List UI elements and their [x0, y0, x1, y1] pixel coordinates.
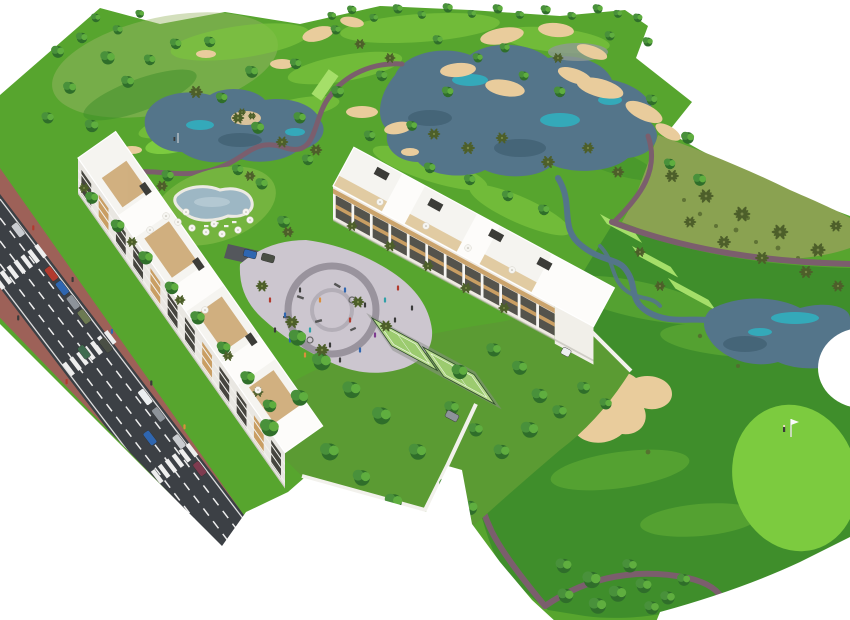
pedestrian: [72, 277, 74, 282]
arcade-pillar: [407, 232, 410, 259]
golfer-west: [174, 137, 176, 141]
parasol: [175, 219, 182, 226]
plaza-person: [319, 297, 321, 302]
plaza-person: [349, 317, 351, 322]
parasol: [219, 231, 226, 238]
plaza-person: [309, 327, 311, 332]
plaza-person: [384, 297, 386, 302]
plaza-person: [344, 287, 346, 292]
parasol: [202, 307, 209, 314]
plaza-person: [329, 342, 331, 347]
plaza-person: [411, 305, 413, 310]
plaza-person: [274, 327, 276, 332]
plaza-person: [359, 347, 361, 352]
plaza-person: [284, 312, 286, 317]
parasol: [509, 267, 516, 274]
plaza-person: [269, 297, 271, 302]
arcade-pillar: [481, 272, 484, 299]
plaza-person: [394, 317, 396, 322]
parasol: [255, 387, 262, 394]
parasol: [147, 227, 154, 234]
plaza-person: [299, 287, 301, 292]
parasol: [183, 209, 190, 216]
parasol: [203, 229, 210, 236]
aerial-render: [0, 0, 850, 620]
arcade-pillar: [333, 192, 336, 219]
parasol: [189, 225, 196, 232]
golfer: [783, 427, 785, 432]
pool-highlight: [194, 197, 230, 207]
parasol: [247, 217, 254, 224]
pedestrian: [32, 225, 34, 230]
plaza-person: [374, 332, 376, 337]
arcade-pillar: [518, 292, 521, 319]
render-canvas: [0, 0, 850, 620]
plaza-person: [304, 352, 306, 357]
parasol: [235, 227, 242, 234]
parasol: [377, 199, 384, 206]
arcade-pillar: [536, 302, 539, 329]
arcade-pillar: [444, 252, 447, 279]
pedestrian: [66, 379, 68, 384]
pedestrian: [17, 315, 19, 320]
pedestrian: [111, 329, 113, 334]
pedestrian: [183, 424, 185, 429]
parasol: [163, 213, 170, 220]
plaza-person: [364, 302, 366, 307]
golfer-head: [783, 425, 785, 427]
pedestrian: [150, 380, 152, 385]
parasol: [423, 223, 430, 230]
arcade-pillar: [370, 212, 373, 239]
plaza-person: [339, 357, 341, 362]
parasol: [243, 209, 250, 216]
parasol: [465, 245, 472, 252]
plaza-person: [397, 285, 399, 290]
parasol: [211, 221, 218, 228]
